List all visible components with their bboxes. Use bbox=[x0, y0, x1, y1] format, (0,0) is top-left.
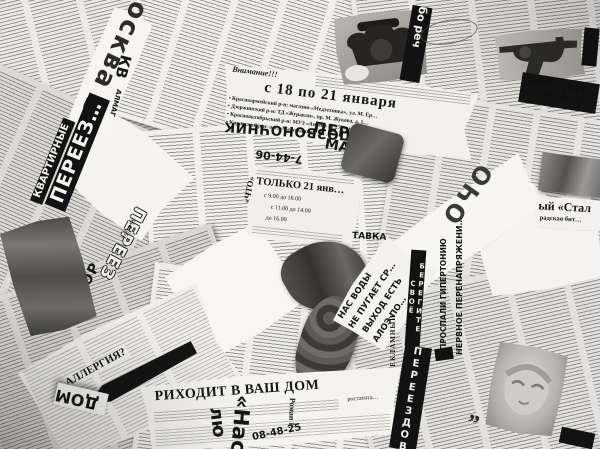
prostatita-label: ростатита… bbox=[347, 395, 379, 403]
only-21-ad: ТОЛЬКО 21 янв… с 9.00 до 18.00 с 11.00 д… bbox=[243, 164, 362, 249]
nash-big-letters: «Нас bbox=[227, 394, 254, 449]
hypertension-strip: ПРОСПАЛИ ГИПЕРТОНИЮ bbox=[440, 238, 448, 350]
newspaper-collage-photo: осква в КВ АЛМАГ КВАРТИРНЫЕ ПЕРЕЕЗ… Вним… bbox=[0, 0, 600, 449]
stalingrad-line2: радская бит… bbox=[540, 215, 582, 224]
schedule-line: с 11.00 до 14.00 bbox=[270, 205, 310, 215]
nervous-strip: НЕРВНОЕ ПЕРЕНАПРЯЖЕНИ… bbox=[456, 217, 464, 355]
schedule-line: с 9.00 до 18.00 bbox=[264, 193, 302, 203]
stalingrad-headline-chip: ый «Стал радская бит… bbox=[534, 196, 600, 232]
battle-photo-strip bbox=[538, 152, 600, 198]
stalingrad-line1: ый «Стал bbox=[538, 199, 591, 214]
advert-vertical: РЕКЛАМНЫЙ bbox=[390, 314, 397, 372]
tavka-label: ТАВКА bbox=[352, 232, 387, 243]
lyu-letters: лю bbox=[205, 406, 227, 439]
schedule-line: до 16.00 bbox=[265, 215, 287, 223]
